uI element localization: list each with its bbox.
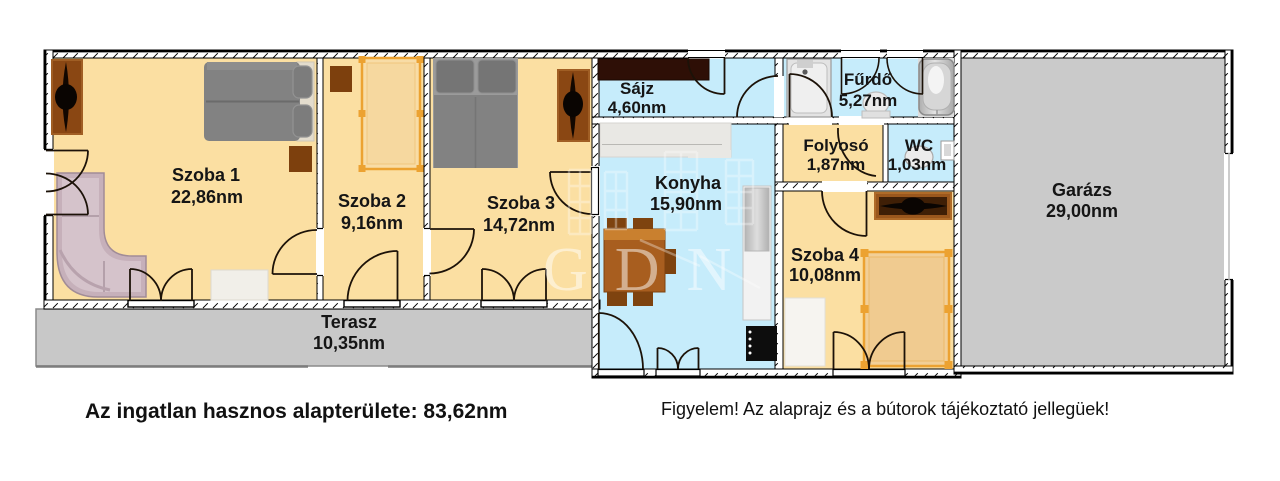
svg-text:WC: WC bbox=[905, 136, 933, 155]
svg-text:14,72nm: 14,72nm bbox=[483, 215, 555, 235]
svg-text:Szoba 2: Szoba 2 bbox=[338, 191, 406, 211]
svg-text:1,03nm: 1,03nm bbox=[888, 155, 947, 174]
svg-text:22,86nm: 22,86nm bbox=[171, 187, 243, 207]
svg-text:GDN: GDN bbox=[543, 236, 758, 304]
svg-text:Konyha: Konyha bbox=[655, 173, 722, 193]
svg-text:Terasz: Terasz bbox=[321, 312, 377, 332]
svg-text:1,87nm: 1,87nm bbox=[807, 155, 866, 174]
svg-text:29,00nm: 29,00nm bbox=[1046, 201, 1118, 221]
svg-text:15,90nm: 15,90nm bbox=[650, 194, 722, 214]
svg-text:Figyelem! Az alaprajz és a bút: Figyelem! Az alaprajz és a bútorok tájék… bbox=[661, 399, 1109, 419]
svg-text:9,16nm: 9,16nm bbox=[341, 213, 403, 233]
svg-text:Szoba 4: Szoba 4 bbox=[791, 245, 859, 265]
svg-text:Szoba 1: Szoba 1 bbox=[172, 165, 240, 185]
svg-text:Sájz: Sájz bbox=[620, 79, 654, 98]
svg-text:4,60nm: 4,60nm bbox=[608, 98, 667, 117]
svg-text:Folyosó: Folyosó bbox=[803, 136, 868, 155]
svg-text:10,08nm: 10,08nm bbox=[789, 265, 861, 285]
svg-text:5,27nm: 5,27nm bbox=[839, 91, 898, 110]
svg-text:Fűrdő: Fűrdő bbox=[844, 70, 892, 89]
svg-text:Szoba 3: Szoba 3 bbox=[487, 193, 555, 213]
svg-text:Az ingatlan hasznos alapterüle: Az ingatlan hasznos alapterülete: 83,62n… bbox=[85, 400, 507, 423]
svg-text:Garázs: Garázs bbox=[1052, 180, 1112, 200]
svg-text:10,35nm: 10,35nm bbox=[313, 333, 385, 353]
